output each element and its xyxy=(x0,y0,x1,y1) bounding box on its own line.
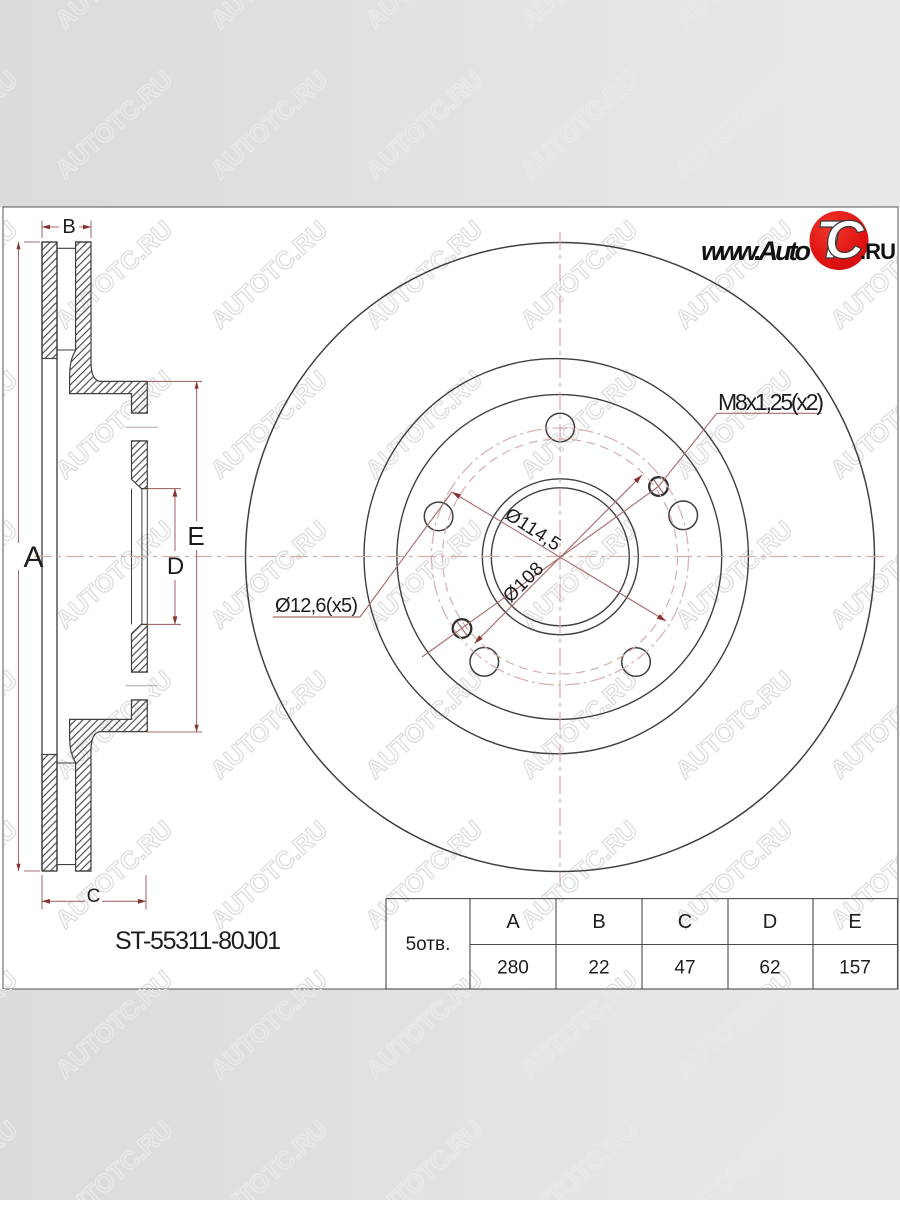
svg-text:.RU: .RU xyxy=(860,239,896,264)
svg-text:62: 62 xyxy=(759,958,780,979)
svg-text:C: C xyxy=(87,886,101,907)
svg-text:D: D xyxy=(167,553,184,580)
svg-text:5отв.: 5отв. xyxy=(406,934,451,955)
svg-text:A: A xyxy=(506,911,520,933)
svg-text:B: B xyxy=(62,216,75,238)
svg-text:B: B xyxy=(592,911,605,933)
svg-text:Ø12,6(x5): Ø12,6(x5) xyxy=(275,595,358,617)
svg-text:E: E xyxy=(848,911,861,933)
svg-text:M8x1,25(x2): M8x1,25(x2) xyxy=(718,389,824,415)
svg-text:ST-55311-80J01: ST-55311-80J01 xyxy=(115,927,281,955)
svg-text:C: C xyxy=(678,911,692,933)
svg-text:TC: TC xyxy=(816,210,865,270)
svg-text:D: D xyxy=(763,911,777,933)
svg-text:A: A xyxy=(23,541,43,574)
svg-text:280: 280 xyxy=(497,958,529,979)
svg-text:E: E xyxy=(187,521,204,551)
svg-text:157: 157 xyxy=(839,958,871,979)
svg-text:47: 47 xyxy=(674,958,695,979)
svg-text:www.Auto: www.Auto xyxy=(701,236,811,266)
svg-text:22: 22 xyxy=(588,958,609,979)
